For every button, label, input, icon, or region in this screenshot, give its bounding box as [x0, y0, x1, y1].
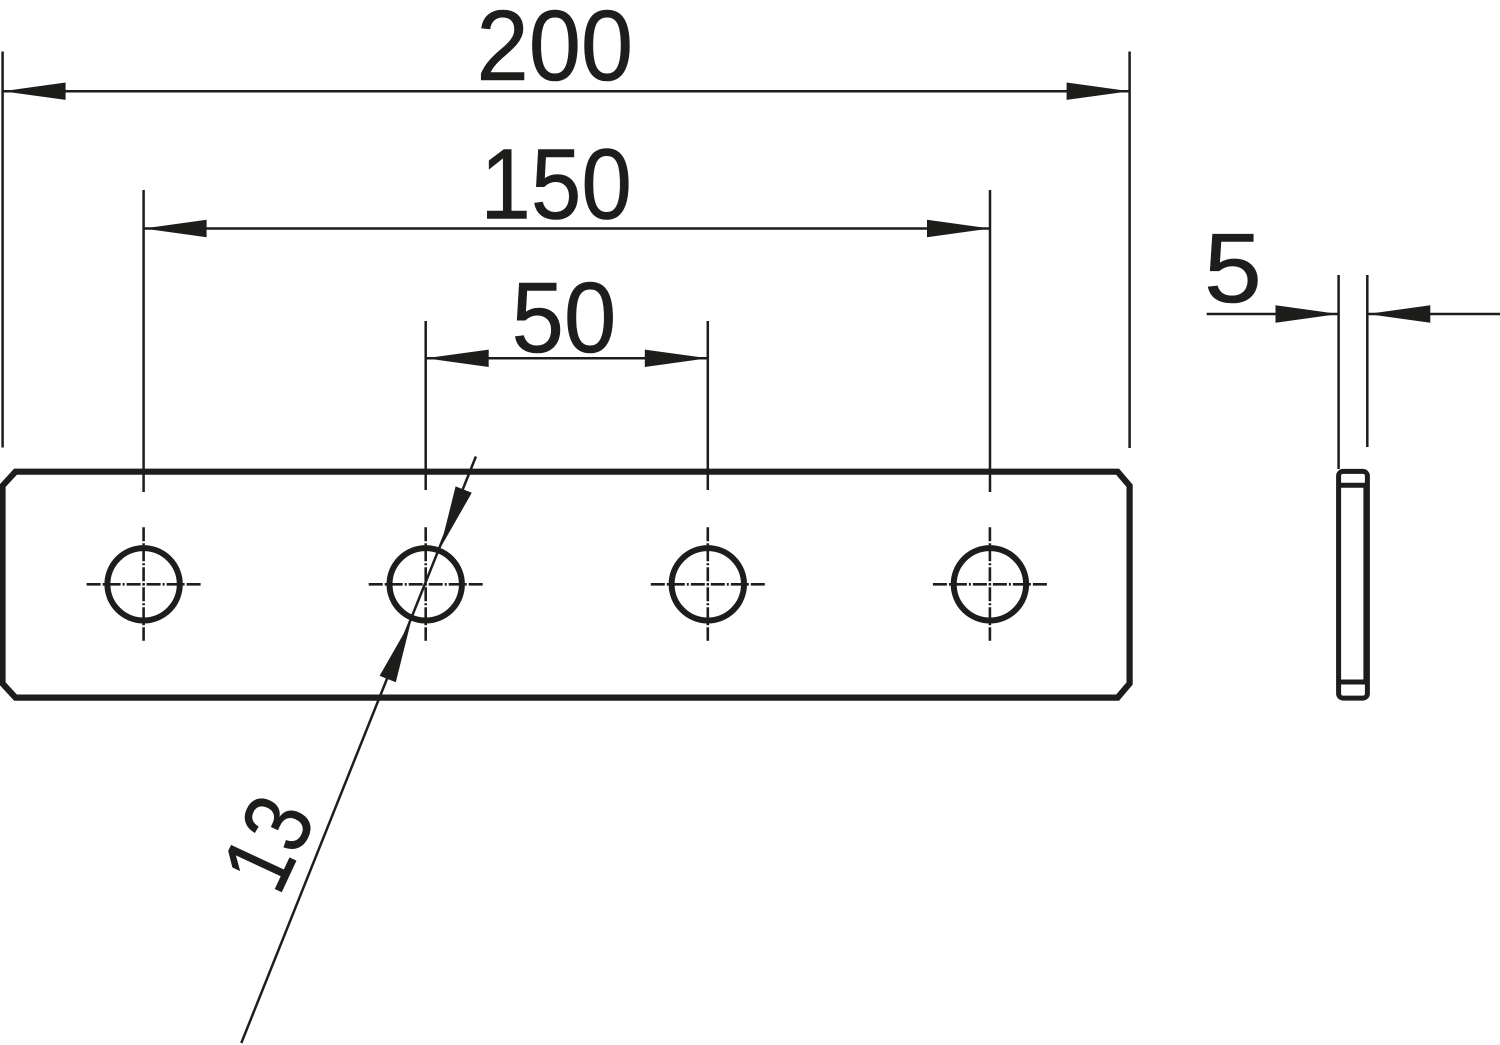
svg-text:50: 50	[511, 261, 616, 373]
svg-text:5: 5	[1204, 215, 1262, 324]
svg-text:200: 200	[476, 0, 633, 102]
svg-text:150: 150	[480, 129, 631, 240]
